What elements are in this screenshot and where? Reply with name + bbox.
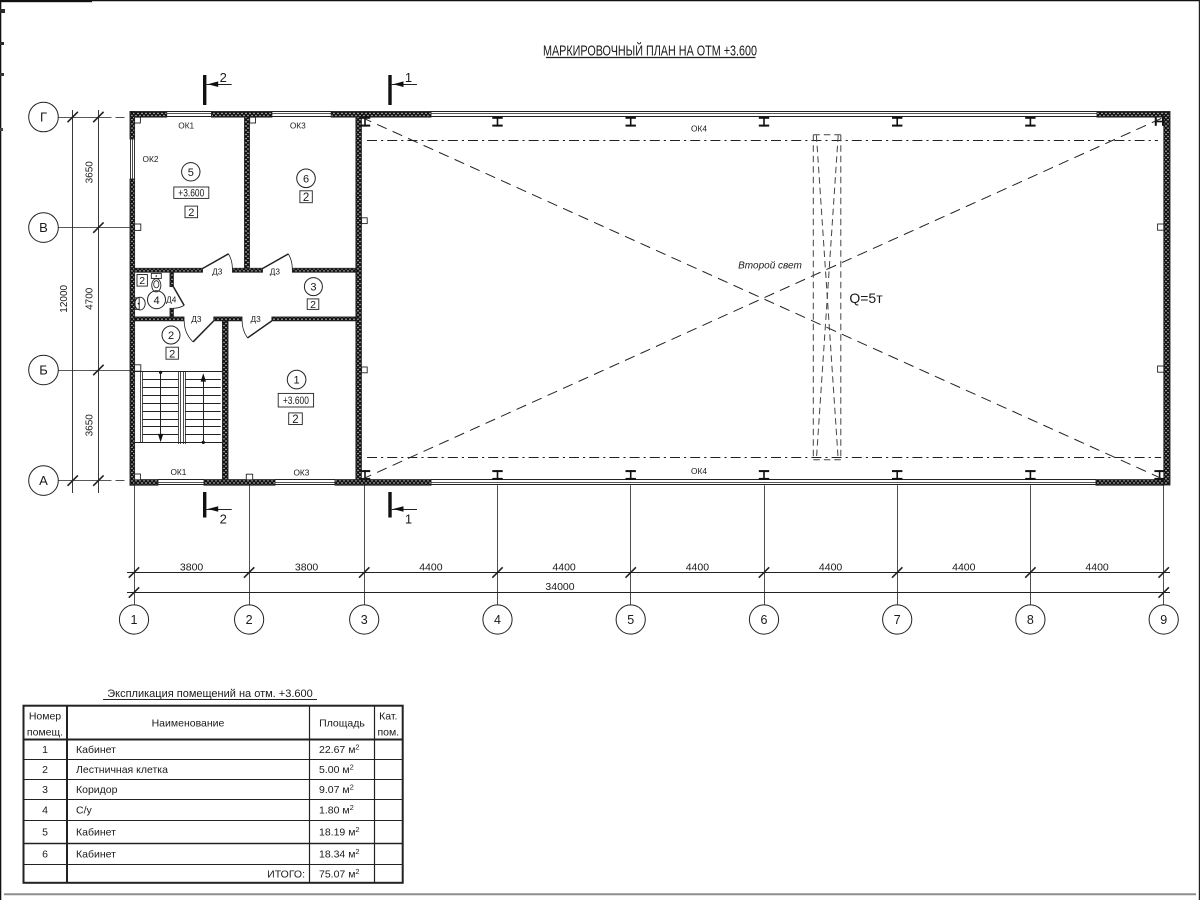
svg-text:2: 2 — [188, 207, 194, 219]
svg-text:МАРКИРОВОЧНЫЙ ПЛАН НА ОТМ +3.6: МАРКИРОВОЧНЫЙ ПЛАН НА ОТМ +3.600 — [543, 42, 757, 59]
svg-text:4400: 4400 — [819, 562, 843, 574]
svg-text:Кабинет: Кабинет — [76, 744, 116, 756]
svg-text:9.07 м2: 9.07 м2 — [319, 783, 354, 797]
svg-text:3800: 3800 — [180, 562, 204, 574]
svg-text:Д3: Д3 — [212, 267, 223, 277]
svg-text:2: 2 — [310, 299, 316, 311]
svg-text:Г: Г — [40, 110, 47, 125]
svg-text:34000: 34000 — [545, 581, 574, 593]
svg-text:3800: 3800 — [295, 562, 319, 574]
svg-text:Экспликация помещений на отм.: Экспликация помещений на отм. +3.600 — [107, 688, 313, 700]
svg-text:4400: 4400 — [952, 562, 976, 574]
svg-text:1: 1 — [405, 512, 412, 527]
svg-text:3650: 3650 — [85, 161, 96, 184]
svg-text:22.67 м2: 22.67 м2 — [319, 743, 360, 757]
svg-text:ОК1: ОК1 — [178, 121, 194, 131]
svg-text:6: 6 — [42, 849, 48, 861]
svg-text:ОК3: ОК3 — [290, 121, 306, 131]
svg-text:2: 2 — [303, 192, 309, 204]
svg-text:ИТОГО:: ИТОГО: — [267, 869, 305, 881]
svg-text:3: 3 — [42, 784, 48, 796]
svg-text:Номер: Номер — [29, 711, 61, 723]
svg-text:Кат.: Кат. — [379, 711, 397, 723]
svg-text:Коридор: Коридор — [76, 784, 118, 796]
svg-text:4400: 4400 — [552, 562, 576, 574]
svg-text:4400: 4400 — [1085, 562, 1109, 574]
svg-text:А: А — [39, 473, 48, 488]
svg-text:В: В — [39, 220, 48, 235]
svg-text:5: 5 — [627, 613, 634, 627]
svg-text:Площадь: Площадь — [319, 718, 365, 730]
svg-text:2: 2 — [220, 70, 227, 85]
svg-text:1.80 м2: 1.80 м2 — [319, 803, 354, 817]
svg-text:Д3: Д3 — [270, 267, 281, 277]
svg-text:Кабинет: Кабинет — [76, 827, 116, 839]
svg-text:18.34 м2: 18.34 м2 — [319, 847, 360, 861]
svg-text:С/у: С/у — [76, 804, 93, 816]
svg-text:75.07 м2: 75.07 м2 — [319, 867, 360, 881]
svg-text:4: 4 — [42, 804, 48, 816]
svg-text:ОК1: ОК1 — [170, 467, 186, 477]
svg-text:Q=5т: Q=5т — [849, 290, 883, 306]
svg-text:Наименование: Наименование — [152, 718, 225, 730]
svg-text:Д3: Д3 — [250, 314, 261, 324]
svg-text:пом.: пом. — [377, 727, 399, 739]
svg-text:18.19 м2: 18.19 м2 — [319, 825, 360, 839]
svg-text:ОК2: ОК2 — [143, 154, 159, 164]
svg-text:2: 2 — [292, 414, 298, 426]
svg-text:2: 2 — [220, 512, 227, 527]
svg-text:12000: 12000 — [59, 284, 70, 312]
svg-text:5.00 м2: 5.00 м2 — [319, 763, 354, 777]
svg-text:Б: Б — [39, 363, 48, 378]
svg-text:2: 2 — [139, 275, 145, 287]
svg-text:Второй свет: Второй свет — [738, 261, 802, 272]
svg-text:4700: 4700 — [85, 287, 96, 310]
svg-text:+3.600: +3.600 — [178, 187, 204, 199]
svg-text:4: 4 — [494, 613, 501, 627]
svg-text:4400: 4400 — [686, 562, 710, 574]
svg-text:6: 6 — [761, 613, 768, 627]
svg-text:7: 7 — [894, 613, 901, 627]
svg-text:Лестничная клетка: Лестничная клетка — [76, 764, 168, 776]
svg-text:5: 5 — [188, 167, 194, 179]
svg-text:4400: 4400 — [419, 562, 443, 574]
svg-text:ОК3: ОК3 — [293, 468, 309, 478]
svg-text:1: 1 — [405, 70, 412, 85]
svg-text:Кабинет: Кабинет — [76, 849, 116, 861]
svg-text:8: 8 — [1027, 613, 1034, 627]
svg-text:4: 4 — [153, 295, 159, 307]
svg-text:2: 2 — [246, 613, 253, 627]
svg-text:3: 3 — [361, 613, 368, 627]
svg-text:ОК4: ОК4 — [691, 466, 707, 476]
svg-text:9: 9 — [1160, 613, 1167, 627]
svg-text:2: 2 — [168, 330, 174, 342]
svg-text:+3.600: +3.600 — [283, 395, 309, 407]
svg-text:Д3: Д3 — [191, 314, 202, 324]
svg-text:5: 5 — [42, 827, 48, 839]
svg-text:1: 1 — [131, 613, 138, 627]
svg-text:2: 2 — [42, 764, 48, 776]
svg-text:2: 2 — [169, 348, 175, 360]
svg-text:3: 3 — [310, 282, 316, 294]
svg-text:3650: 3650 — [85, 414, 96, 437]
svg-text:6: 6 — [303, 173, 309, 185]
svg-text:1: 1 — [42, 744, 48, 756]
svg-text:помещ.: помещ. — [27, 727, 63, 739]
svg-text:1: 1 — [294, 375, 300, 387]
svg-text:ОК4: ОК4 — [691, 124, 707, 134]
svg-text:Д4: Д4 — [166, 294, 177, 304]
